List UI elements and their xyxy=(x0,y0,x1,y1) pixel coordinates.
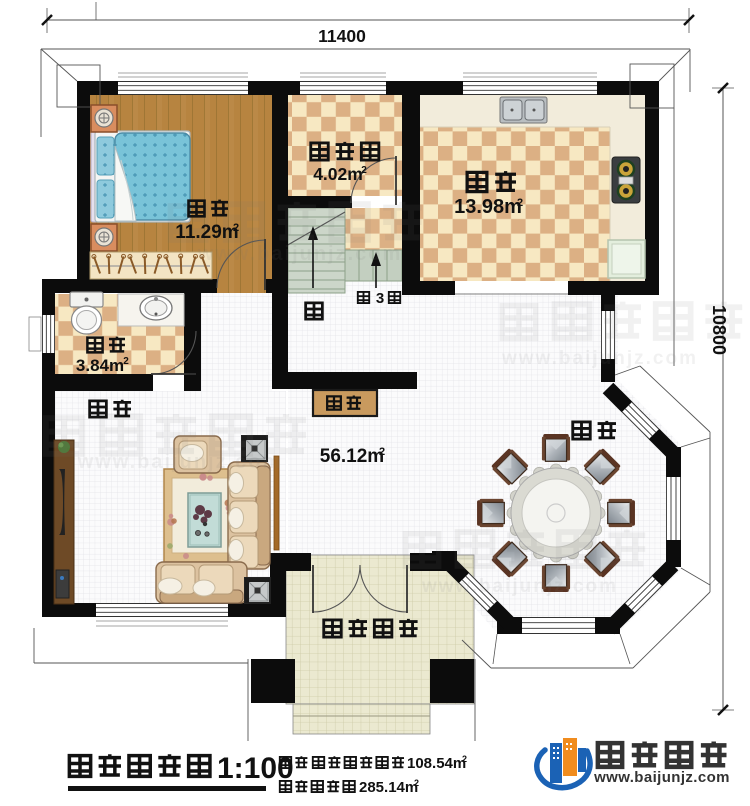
svg-text:www.baijunjz.com: www.baijunjz.com xyxy=(197,243,403,265)
svg-text:4.02m: 4.02m xyxy=(313,164,363,184)
svg-text:www.baijunjz.com: www.baijunjz.com xyxy=(593,769,730,786)
svg-text:www.baijunjz.com: www.baijunjz.com xyxy=(77,451,283,473)
svg-text:2: 2 xyxy=(361,165,367,176)
svg-text:13.98m: 13.98m xyxy=(454,196,522,218)
svg-text:2: 2 xyxy=(517,197,523,209)
svg-text:2: 2 xyxy=(379,446,385,458)
svg-text:10800: 10800 xyxy=(709,305,729,355)
svg-text:www.baijunjz.com: www.baijunjz.com xyxy=(421,576,618,597)
svg-text:3.84m: 3.84m xyxy=(76,356,124,375)
svg-text:3: 3 xyxy=(376,290,384,307)
svg-text:11400: 11400 xyxy=(318,26,366,46)
svg-text:2: 2 xyxy=(123,356,129,367)
svg-text:108.54m: 108.54m xyxy=(407,755,466,772)
svg-text:56.12m: 56.12m xyxy=(320,446,384,467)
svg-text:285.14m: 285.14m xyxy=(359,779,418,796)
svg-text:www.baijunjz.com: www.baijunjz.com xyxy=(501,348,698,369)
svg-text:2: 2 xyxy=(414,778,419,788)
svg-text:2: 2 xyxy=(462,754,467,764)
svg-text:2: 2 xyxy=(233,222,239,234)
svg-text:11.29m: 11.29m xyxy=(175,222,238,243)
